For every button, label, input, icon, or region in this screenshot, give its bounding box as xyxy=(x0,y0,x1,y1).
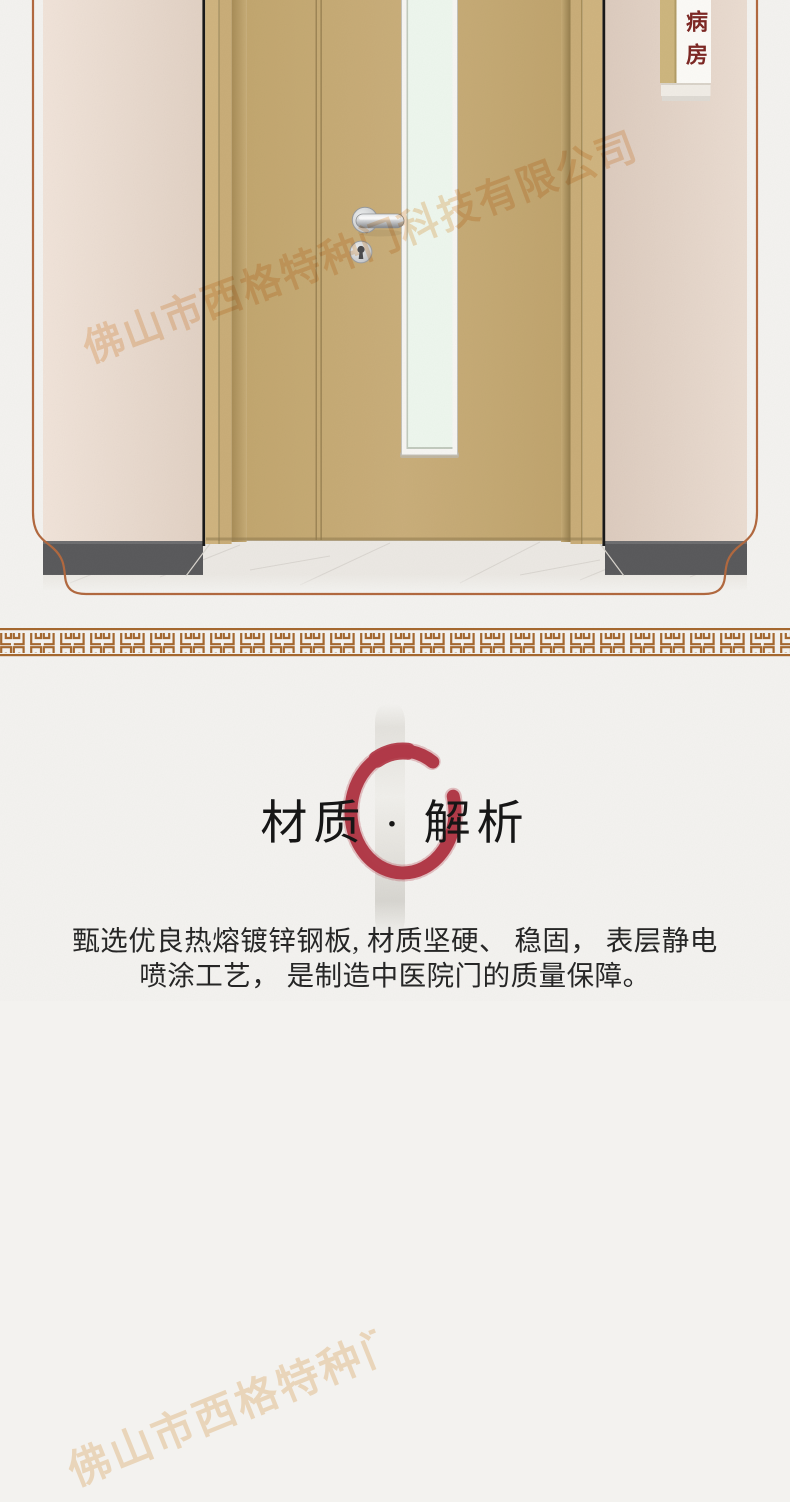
section-description-line1: 甄选优良热熔镀锌钢板, 材质坚硬、 稳固， 表层静电 xyxy=(0,918,790,958)
material-analysis-section: 佛山市西格特种门科技有限公司 材质 · 解析 甄选优良热熔镀锌钢板, 材质坚硬、… xyxy=(0,660,790,1001)
product-detail-page: 病房 佛山市西格特种门科技有限公司 佛山市西格特种门科技有限公司 xyxy=(0,0,790,1001)
meander-border-icon xyxy=(0,626,790,660)
section-description-line2: 喷涂工艺， 是制造中医院门的质量保障。 xyxy=(0,953,790,993)
ward-sign-label: 病房 xyxy=(677,7,711,79)
door-illustration: 病房 xyxy=(0,0,790,600)
section-title: 材质 · 解析 xyxy=(0,784,790,853)
keyhole xyxy=(350,241,372,263)
company-watermark: 佛山市西格特种门科技有限公司 xyxy=(59,1319,394,1502)
company-watermark-text: 佛山市西格特种门科技有限公司 xyxy=(59,1319,394,1502)
left-wall xyxy=(43,0,203,543)
door-glass-panel xyxy=(400,0,459,458)
door-scene-graphic xyxy=(0,0,790,600)
